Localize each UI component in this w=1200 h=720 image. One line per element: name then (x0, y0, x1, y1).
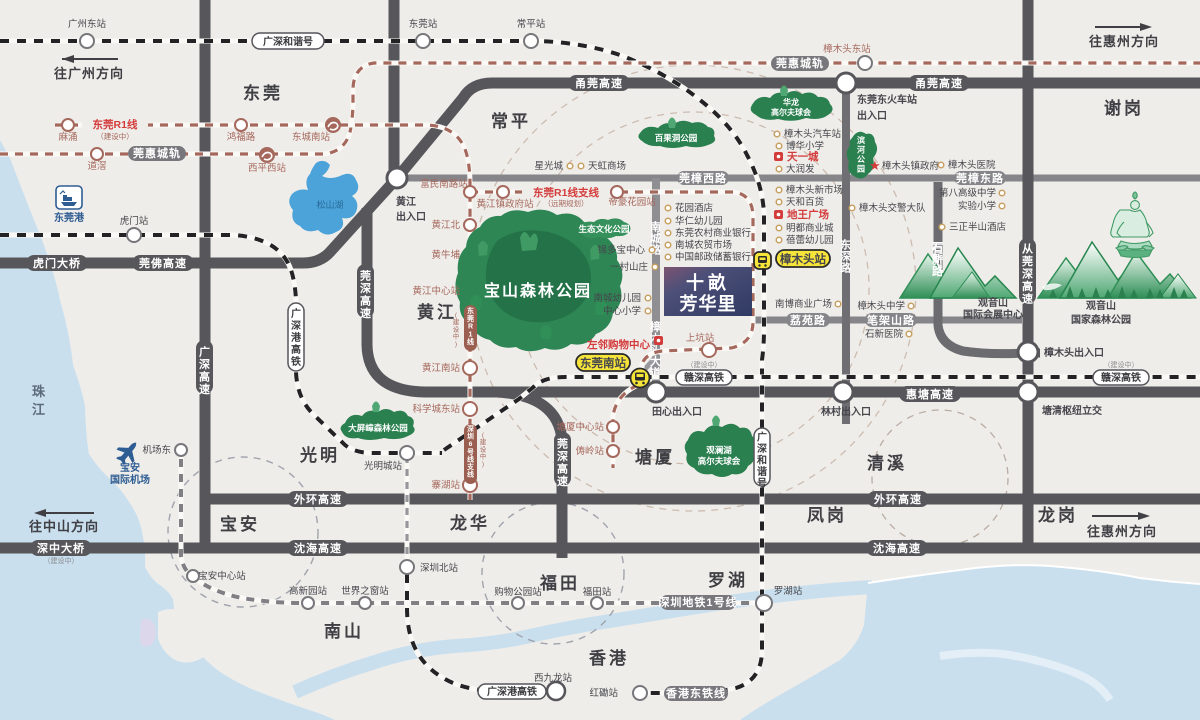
svg-text:宝山森林公园: 宝山森林公园 (484, 281, 592, 300)
svg-text:速: 速 (1022, 291, 1034, 305)
svg-text:（建设中）: （建设中） (687, 360, 722, 369)
svg-text:外环高速: 外环高速 (873, 492, 922, 506)
svg-text:左邻购物中心: 左邻购物中心 (586, 338, 650, 351)
svg-text:宝安: 宝安 (120, 461, 140, 474)
svg-text:明都商业城: 明都商业城 (786, 222, 834, 234)
svg-text:路: 路 (840, 261, 852, 275)
svg-text:鸿福路: 鸿福路 (227, 131, 256, 143)
svg-text:蓓蕾幼儿园: 蓓蕾幼儿园 (786, 234, 834, 246)
svg-text:星光城: 星光城 (534, 160, 563, 172)
svg-text:观音山: 观音山 (1086, 299, 1116, 312)
svg-text:林村出入口: 林村出入口 (821, 405, 871, 418)
svg-text:凤岗: 凤岗 (807, 505, 847, 525)
svg-text:黄江中心站: 黄江中心站 (412, 285, 460, 297)
svg-text:黄牛埔: 黄牛埔 (431, 249, 460, 261)
svg-text:东莞港: 东莞港 (54, 211, 85, 224)
svg-text:东城南站: 东城南站 (292, 131, 331, 143)
svg-text:高: 高 (199, 369, 211, 383)
svg-text:广: 广 (757, 431, 767, 444)
svg-text:莞惠城轨: 莞惠城轨 (775, 56, 824, 70)
svg-text:光明城站: 光明城站 (364, 460, 403, 472)
svg-text:深: 深 (467, 424, 474, 433)
svg-text:天和百货: 天和百货 (786, 196, 824, 208)
svg-text:宝安中心站: 宝安中心站 (198, 570, 246, 582)
svg-text:河: 河 (857, 144, 865, 154)
svg-text:线: 线 (467, 470, 474, 479)
svg-text:香港: 香港 (589, 648, 629, 668)
svg-text:莞: 莞 (556, 436, 569, 450)
svg-text:石: 石 (931, 242, 944, 255)
svg-text:科学城东站: 科学城东站 (412, 403, 460, 415)
svg-text:第八高级中学: 第八高级中学 (939, 187, 996, 199)
svg-text:谐: 谐 (757, 465, 767, 478)
svg-text:罗湖: 罗湖 (708, 571, 748, 590)
svg-text:6: 6 (469, 441, 473, 448)
svg-text:): ) (482, 461, 484, 468)
svg-text:惠塘高速: 惠塘高速 (906, 387, 954, 401)
svg-text:莞惠城轨: 莞惠城轨 (132, 146, 181, 160)
svg-text:赣深高铁: 赣深高铁 (1101, 371, 1141, 384)
svg-text:深: 深 (557, 449, 569, 463)
svg-text:荔苑路: 荔苑路 (789, 313, 826, 327)
svg-text:常平: 常平 (491, 111, 531, 131)
svg-text:沈海高速: 沈海高速 (873, 541, 921, 555)
svg-text:罗湖站: 罗湖站 (774, 585, 803, 597)
svg-text:光明: 光明 (299, 445, 340, 465)
svg-text:高: 高 (1022, 279, 1034, 293)
svg-text:往惠州方向: 往惠州方向 (1087, 524, 1157, 539)
svg-text:圳: 圳 (467, 432, 474, 441)
svg-text:樟木头新市场: 樟木头新市场 (786, 184, 843, 196)
svg-text:园: 园 (857, 164, 865, 173)
svg-text:黄江南站: 黄江南站 (422, 362, 461, 374)
svg-text:（建设中）: （建设中） (44, 556, 79, 565)
svg-text:富民南路站: 富民南路站 (420, 178, 468, 190)
svg-text:（远期规划）: （远期规划） (544, 198, 589, 208)
svg-text:莞: 莞 (359, 268, 372, 282)
svg-text:香港东铁线: 香港东铁线 (665, 686, 726, 700)
svg-text:甬莞高速: 甬莞高速 (915, 76, 963, 90)
svg-text:黄江: 黄江 (417, 302, 457, 322)
svg-text:公: 公 (857, 155, 865, 164)
svg-text:深中大桥: 深中大桥 (37, 541, 85, 555)
svg-text:观澜湖: 观澜湖 (706, 445, 732, 455)
svg-text:（建设中）: （建设中） (96, 131, 134, 141)
svg-text:外环高速: 外环高速 (293, 492, 342, 506)
svg-text:东莞R1线: 东莞R1线 (93, 118, 138, 131)
svg-text:石新医院: 石新医院 (865, 328, 904, 340)
svg-text:宝安: 宝安 (220, 514, 260, 534)
svg-text:虎门站: 虎门站 (120, 215, 149, 227)
svg-text:龙岗: 龙岗 (1037, 505, 1078, 525)
svg-text:广深港高铁: 广深港高铁 (487, 685, 537, 698)
svg-text:建: 建 (480, 437, 487, 446)
svg-text:出入口: 出入口 (857, 109, 887, 122)
svg-text:莞樟东路: 莞樟东路 (955, 171, 1004, 185)
svg-text:塘厦: 塘厦 (635, 447, 675, 467)
svg-text:甬莞高速: 甬莞高速 (575, 76, 623, 90)
svg-text:西平西站: 西平西站 (248, 162, 287, 174)
svg-text:红磡站: 红磡站 (589, 687, 618, 699)
svg-text:东莞农村商业银行: 东莞农村商业银行 (675, 227, 752, 239)
svg-text:上坑站: 上坑站 (686, 332, 715, 344)
svg-text:天虹商场: 天虹商场 (588, 160, 626, 172)
svg-text:R: R (468, 324, 473, 331)
svg-text:铁: 铁 (291, 355, 301, 368)
svg-text:谢岗: 谢岗 (1104, 98, 1144, 118)
svg-text:滨: 滨 (857, 135, 865, 145)
svg-text:莞: 莞 (466, 314, 474, 323)
svg-text:世界之窗站: 世界之窗站 (341, 585, 389, 597)
svg-text:地王广场: 地王广场 (787, 208, 829, 221)
svg-text:高: 高 (360, 293, 372, 307)
svg-text:樟木头镇政府: 樟木头镇政府 (882, 160, 940, 172)
svg-text:中: 中 (480, 452, 487, 461)
svg-text:塘厦中心站: 塘厦中心站 (556, 421, 604, 433)
svg-text:生态文化公园: 生态文化公园 (578, 224, 629, 234)
svg-text:芳华里: 芳华里 (680, 293, 737, 314)
svg-text:东: 东 (840, 238, 852, 252)
svg-text:城: 城 (650, 231, 662, 245)
svg-text:莞佛高速: 莞佛高速 (138, 256, 187, 270)
svg-text:天一城: 天一城 (787, 150, 819, 163)
svg-text:黄江镇政府站: 黄江镇政府站 (476, 198, 534, 210)
svg-text:速: 速 (360, 306, 372, 320)
svg-text:国际机场: 国际机场 (110, 473, 150, 486)
svg-text:寨湖站: 寨湖站 (431, 479, 460, 491)
svg-text:道滘: 道滘 (87, 160, 106, 172)
svg-text:一村山庄: 一村山庄 (610, 261, 649, 273)
svg-text:三正半山酒店: 三正半山酒店 (949, 221, 1006, 233)
svg-text:从: 从 (1022, 242, 1034, 255)
svg-text:南山: 南山 (324, 621, 364, 641)
svg-text:赣深高铁: 赣深高铁 (684, 371, 724, 384)
svg-text:中: 中 (453, 332, 460, 341)
svg-text:速: 速 (557, 474, 569, 488)
svg-text:深圳北站: 深圳北站 (420, 562, 459, 574)
svg-text:珠: 珠 (32, 384, 46, 399)
svg-text:广: 广 (199, 344, 211, 358)
svg-text:黄江北: 黄江北 (431, 219, 460, 231)
svg-text:高尔夫球会: 高尔夫球会 (771, 107, 811, 117)
svg-text:): ) (455, 341, 457, 348)
svg-text:广州东站: 广州东站 (68, 18, 107, 30)
svg-text:清溪: 清溪 (867, 453, 907, 473)
svg-text:莞樟西路: 莞樟西路 (678, 171, 727, 185)
svg-text:龙华: 龙华 (449, 513, 490, 533)
svg-text:东莞: 东莞 (243, 83, 283, 103)
svg-text:东莞站: 东莞站 (409, 18, 438, 30)
svg-text:号: 号 (467, 447, 474, 456)
svg-text:往惠州方向: 往惠州方向 (1089, 34, 1159, 49)
svg-text:（建设中）: （建设中） (1104, 360, 1139, 369)
svg-text:花园酒店: 花园酒店 (675, 202, 713, 214)
svg-text:港: 港 (291, 331, 302, 344)
svg-text:樟木头站: 樟木头站 (779, 252, 826, 266)
svg-text:帝豪花园站: 帝豪花园站 (608, 196, 656, 208)
svg-text:高: 高 (291, 343, 301, 356)
svg-text:西九龙站: 西九龙站 (534, 672, 573, 684)
svg-text:十畝: 十畝 (686, 272, 730, 293)
svg-text:国家森林公园: 国家森林公园 (1071, 313, 1131, 326)
svg-text:设: 设 (453, 324, 460, 333)
svg-text:购物公园站: 购物公园站 (494, 586, 542, 598)
svg-text:东莞R1线支线: 东莞R1线支线 (533, 186, 599, 199)
svg-text:樟木头医院: 樟木头医院 (948, 159, 996, 171)
svg-text:松山湖: 松山湖 (316, 199, 343, 210)
svg-text:设: 设 (480, 444, 487, 453)
svg-text:黄江: 黄江 (396, 195, 416, 208)
svg-text:深: 深 (360, 281, 372, 295)
svg-text:深圳地铁1号线: 深圳地铁1号线 (658, 595, 737, 609)
svg-text:麻涌: 麻涌 (58, 131, 77, 143)
svg-text:深: 深 (199, 357, 211, 371)
svg-text:广深和谐号: 广深和谐号 (263, 35, 313, 48)
svg-text:福田站: 福田站 (583, 586, 612, 598)
svg-text:实验小学: 实验小学 (958, 200, 996, 212)
svg-text:常平站: 常平站 (517, 18, 546, 30)
svg-text:往中山方向: 往中山方向 (29, 519, 99, 534)
svg-text:速: 速 (199, 382, 211, 396)
svg-text:机场东: 机场东 (142, 444, 171, 456)
svg-text:樟木头东站: 樟木头东站 (823, 43, 871, 55)
svg-text:高尔夫球会: 高尔夫球会 (698, 456, 741, 466)
svg-text:大屏嶂森林公园: 大屏嶂森林公园 (348, 423, 408, 433)
svg-text:虎门大桥: 虎门大桥 (33, 256, 81, 270)
svg-text:东: 东 (467, 306, 474, 315)
svg-text:江: 江 (32, 402, 45, 417)
svg-text:线: 线 (467, 454, 474, 463)
svg-text:★: ★ (869, 158, 881, 173)
svg-text:莞: 莞 (1021, 254, 1034, 268)
svg-text:锦多宝中心: 锦多宝中心 (597, 244, 645, 256)
svg-text:深: 深 (291, 319, 301, 332)
svg-text:樟木头出入口: 樟木头出入口 (1044, 346, 1104, 359)
svg-text:樟: 樟 (649, 320, 662, 334)
svg-text:华龙: 华龙 (783, 97, 799, 107)
svg-text:1: 1 (469, 331, 473, 338)
svg-text:樟木头汽车站: 樟木头汽车站 (784, 128, 842, 140)
svg-text:线: 线 (467, 337, 474, 346)
svg-text:出入口: 出入口 (396, 210, 426, 223)
svg-text:新: 新 (932, 253, 944, 267)
svg-text:南: 南 (650, 220, 662, 234)
svg-text:笔架山路: 笔架山路 (867, 313, 915, 327)
svg-text:支: 支 (466, 462, 474, 471)
svg-text:田心出入口: 田心出入口 (652, 405, 702, 418)
svg-text:百果洞公园: 百果洞公园 (655, 133, 698, 143)
svg-text:高新园站: 高新园站 (289, 585, 328, 597)
svg-text:樟木头中学: 樟木头中学 (857, 300, 905, 312)
svg-text:往广州方向: 往广州方向 (54, 66, 124, 81)
svg-text:深: 深 (757, 442, 767, 455)
svg-text:深: 深 (840, 249, 852, 263)
svg-text:观音山: 观音山 (978, 296, 1008, 309)
svg-text:南城农贸市场: 南城农贸市场 (675, 239, 732, 251)
svg-text:号: 号 (757, 478, 767, 490)
svg-text:广: 广 (291, 307, 301, 320)
svg-text:樟木头交警大队: 樟木头交警大队 (859, 202, 926, 214)
svg-text:和: 和 (756, 454, 767, 467)
svg-text:福田: 福田 (539, 573, 580, 593)
svg-text:中心小学: 中心小学 (603, 305, 641, 317)
svg-text:深: 深 (1022, 266, 1034, 280)
svg-text:塘清枢纽立交: 塘清枢纽立交 (1042, 404, 1102, 417)
svg-text:大润发: 大润发 (786, 163, 815, 175)
svg-text:国际会展中心: 国际会展中心 (963, 308, 1023, 321)
svg-text:南城幼儿园: 南城幼儿园 (593, 292, 641, 304)
svg-text:俦岭站: 俦岭站 (575, 445, 604, 457)
svg-text:高: 高 (557, 461, 569, 475)
svg-text:东莞东火车站: 东莞东火车站 (857, 93, 917, 106)
svg-text:沈海高速: 沈海高速 (294, 541, 342, 555)
svg-text:中国邮政储蓄银行: 中国邮政储蓄银行 (675, 251, 752, 263)
svg-text:路: 路 (932, 264, 944, 278)
svg-text:南博商业广场: 南博商业广场 (775, 298, 832, 310)
svg-text:华仁幼儿园: 华仁幼儿园 (675, 215, 723, 227)
svg-text:东莞南站: 东莞南站 (580, 356, 626, 370)
